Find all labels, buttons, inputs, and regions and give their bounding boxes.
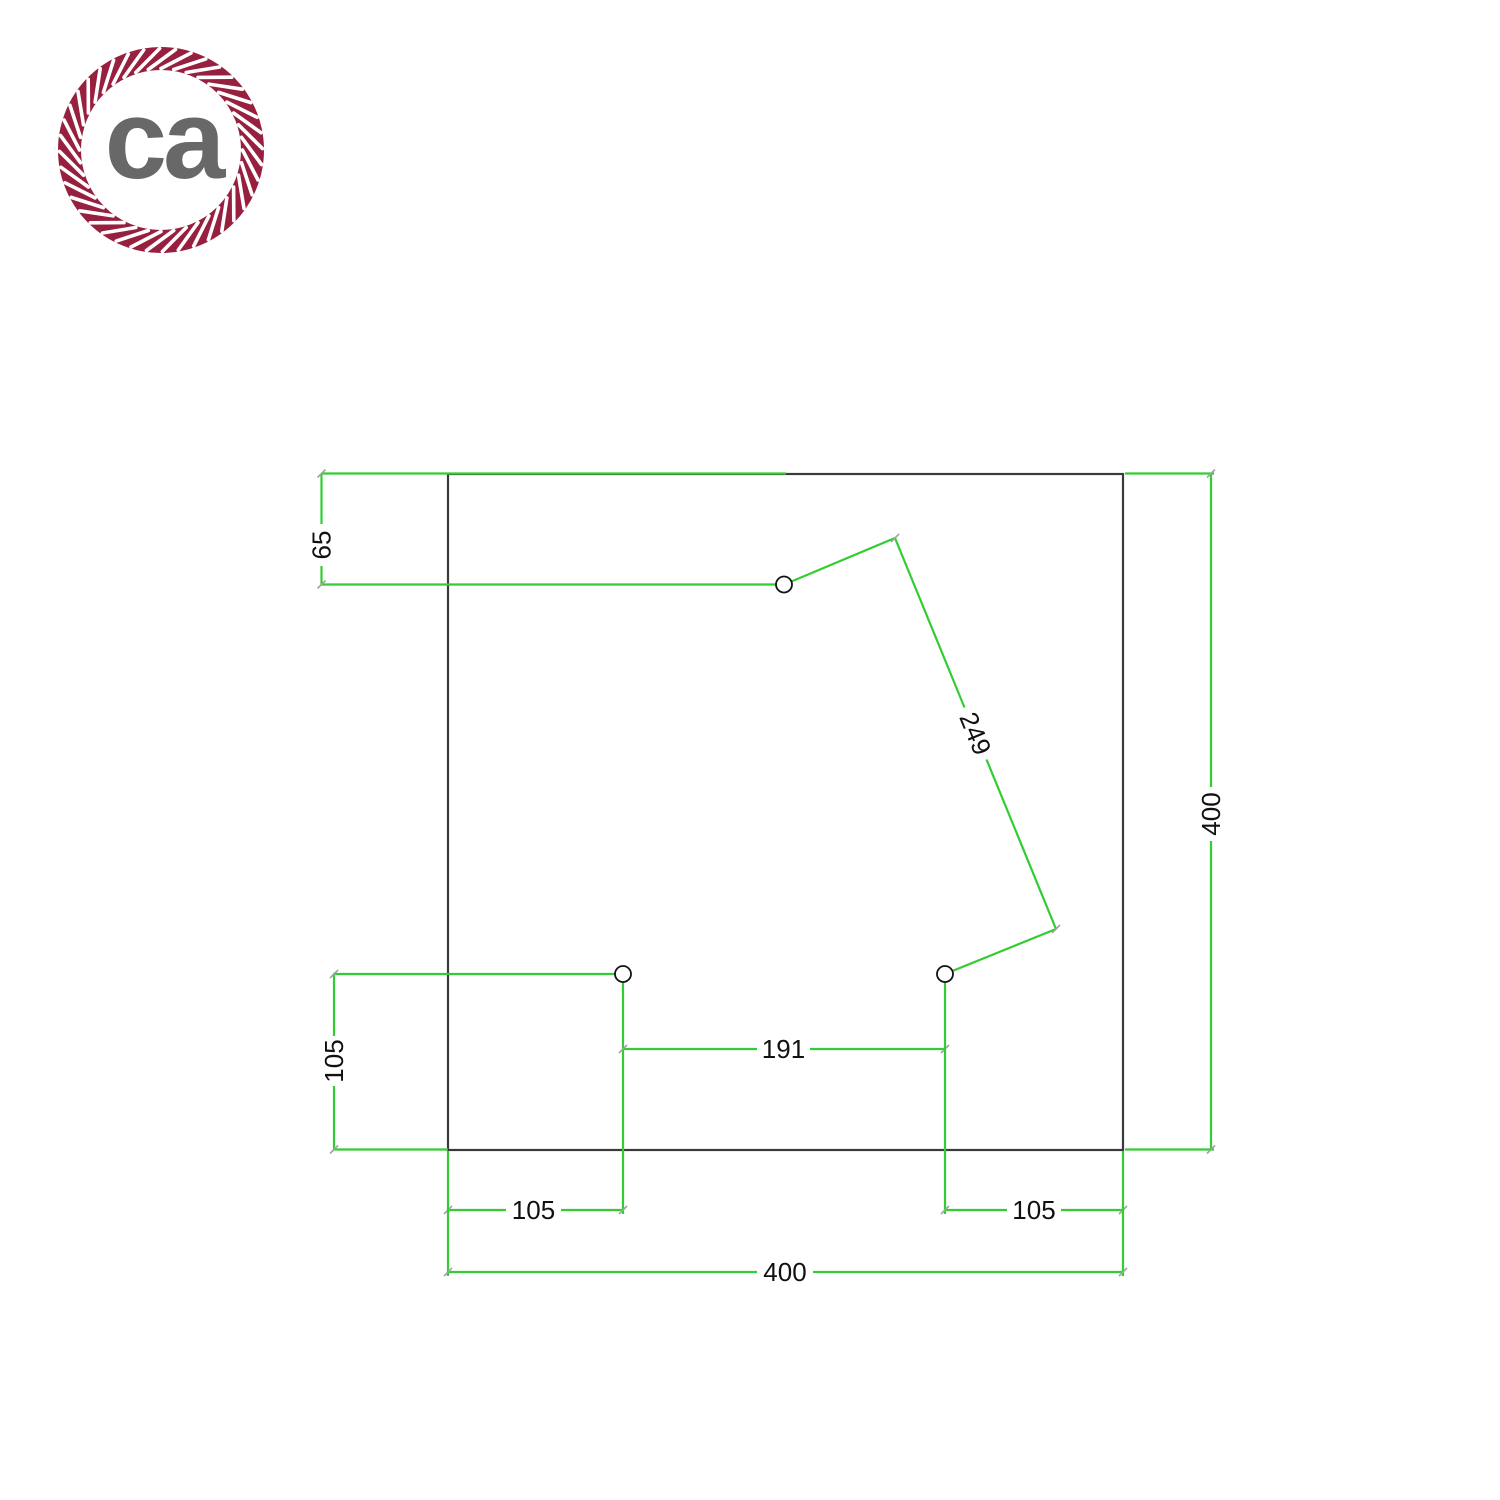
dim-top-hole-offset: 65 [307, 470, 787, 589]
hole-top [776, 577, 792, 593]
product-drawing-page: ca 65 105 105 191 [0, 0, 1500, 1500]
dim-bottom-left-hole-x: 105 [444, 983, 627, 1226]
dim-label-249: 249 [953, 708, 997, 760]
dim-holes-diagonal-distance: 249 [791, 534, 1060, 971]
logo-text: ca [105, 77, 226, 202]
creative-cables-logo: ca [60, 49, 263, 252]
dim-label-400-height: 400 [1196, 792, 1226, 835]
dim-bottom-right-hole-x: 105 [941, 983, 1127, 1226]
dimension-drawing: ca 65 105 105 191 [0, 0, 1500, 1500]
dim-label-65: 65 [307, 531, 337, 560]
dim-label-191: 191 [762, 1034, 805, 1064]
dim-label-105-bottom-right: 105 [1012, 1195, 1055, 1225]
hole-bottom-left [615, 966, 631, 982]
dim-left-hole-to-bottom: 105 [319, 970, 615, 1154]
dim-label-105-bottom-left: 105 [512, 1195, 555, 1225]
dim-label-400-width: 400 [763, 1257, 806, 1287]
dim-bottom-holes-spacing: 191 [619, 1034, 949, 1064]
dim-label-105-left: 105 [319, 1039, 349, 1082]
hole-bottom-right [937, 966, 953, 982]
dim-plate-height: 400 [1125, 470, 1226, 1154]
